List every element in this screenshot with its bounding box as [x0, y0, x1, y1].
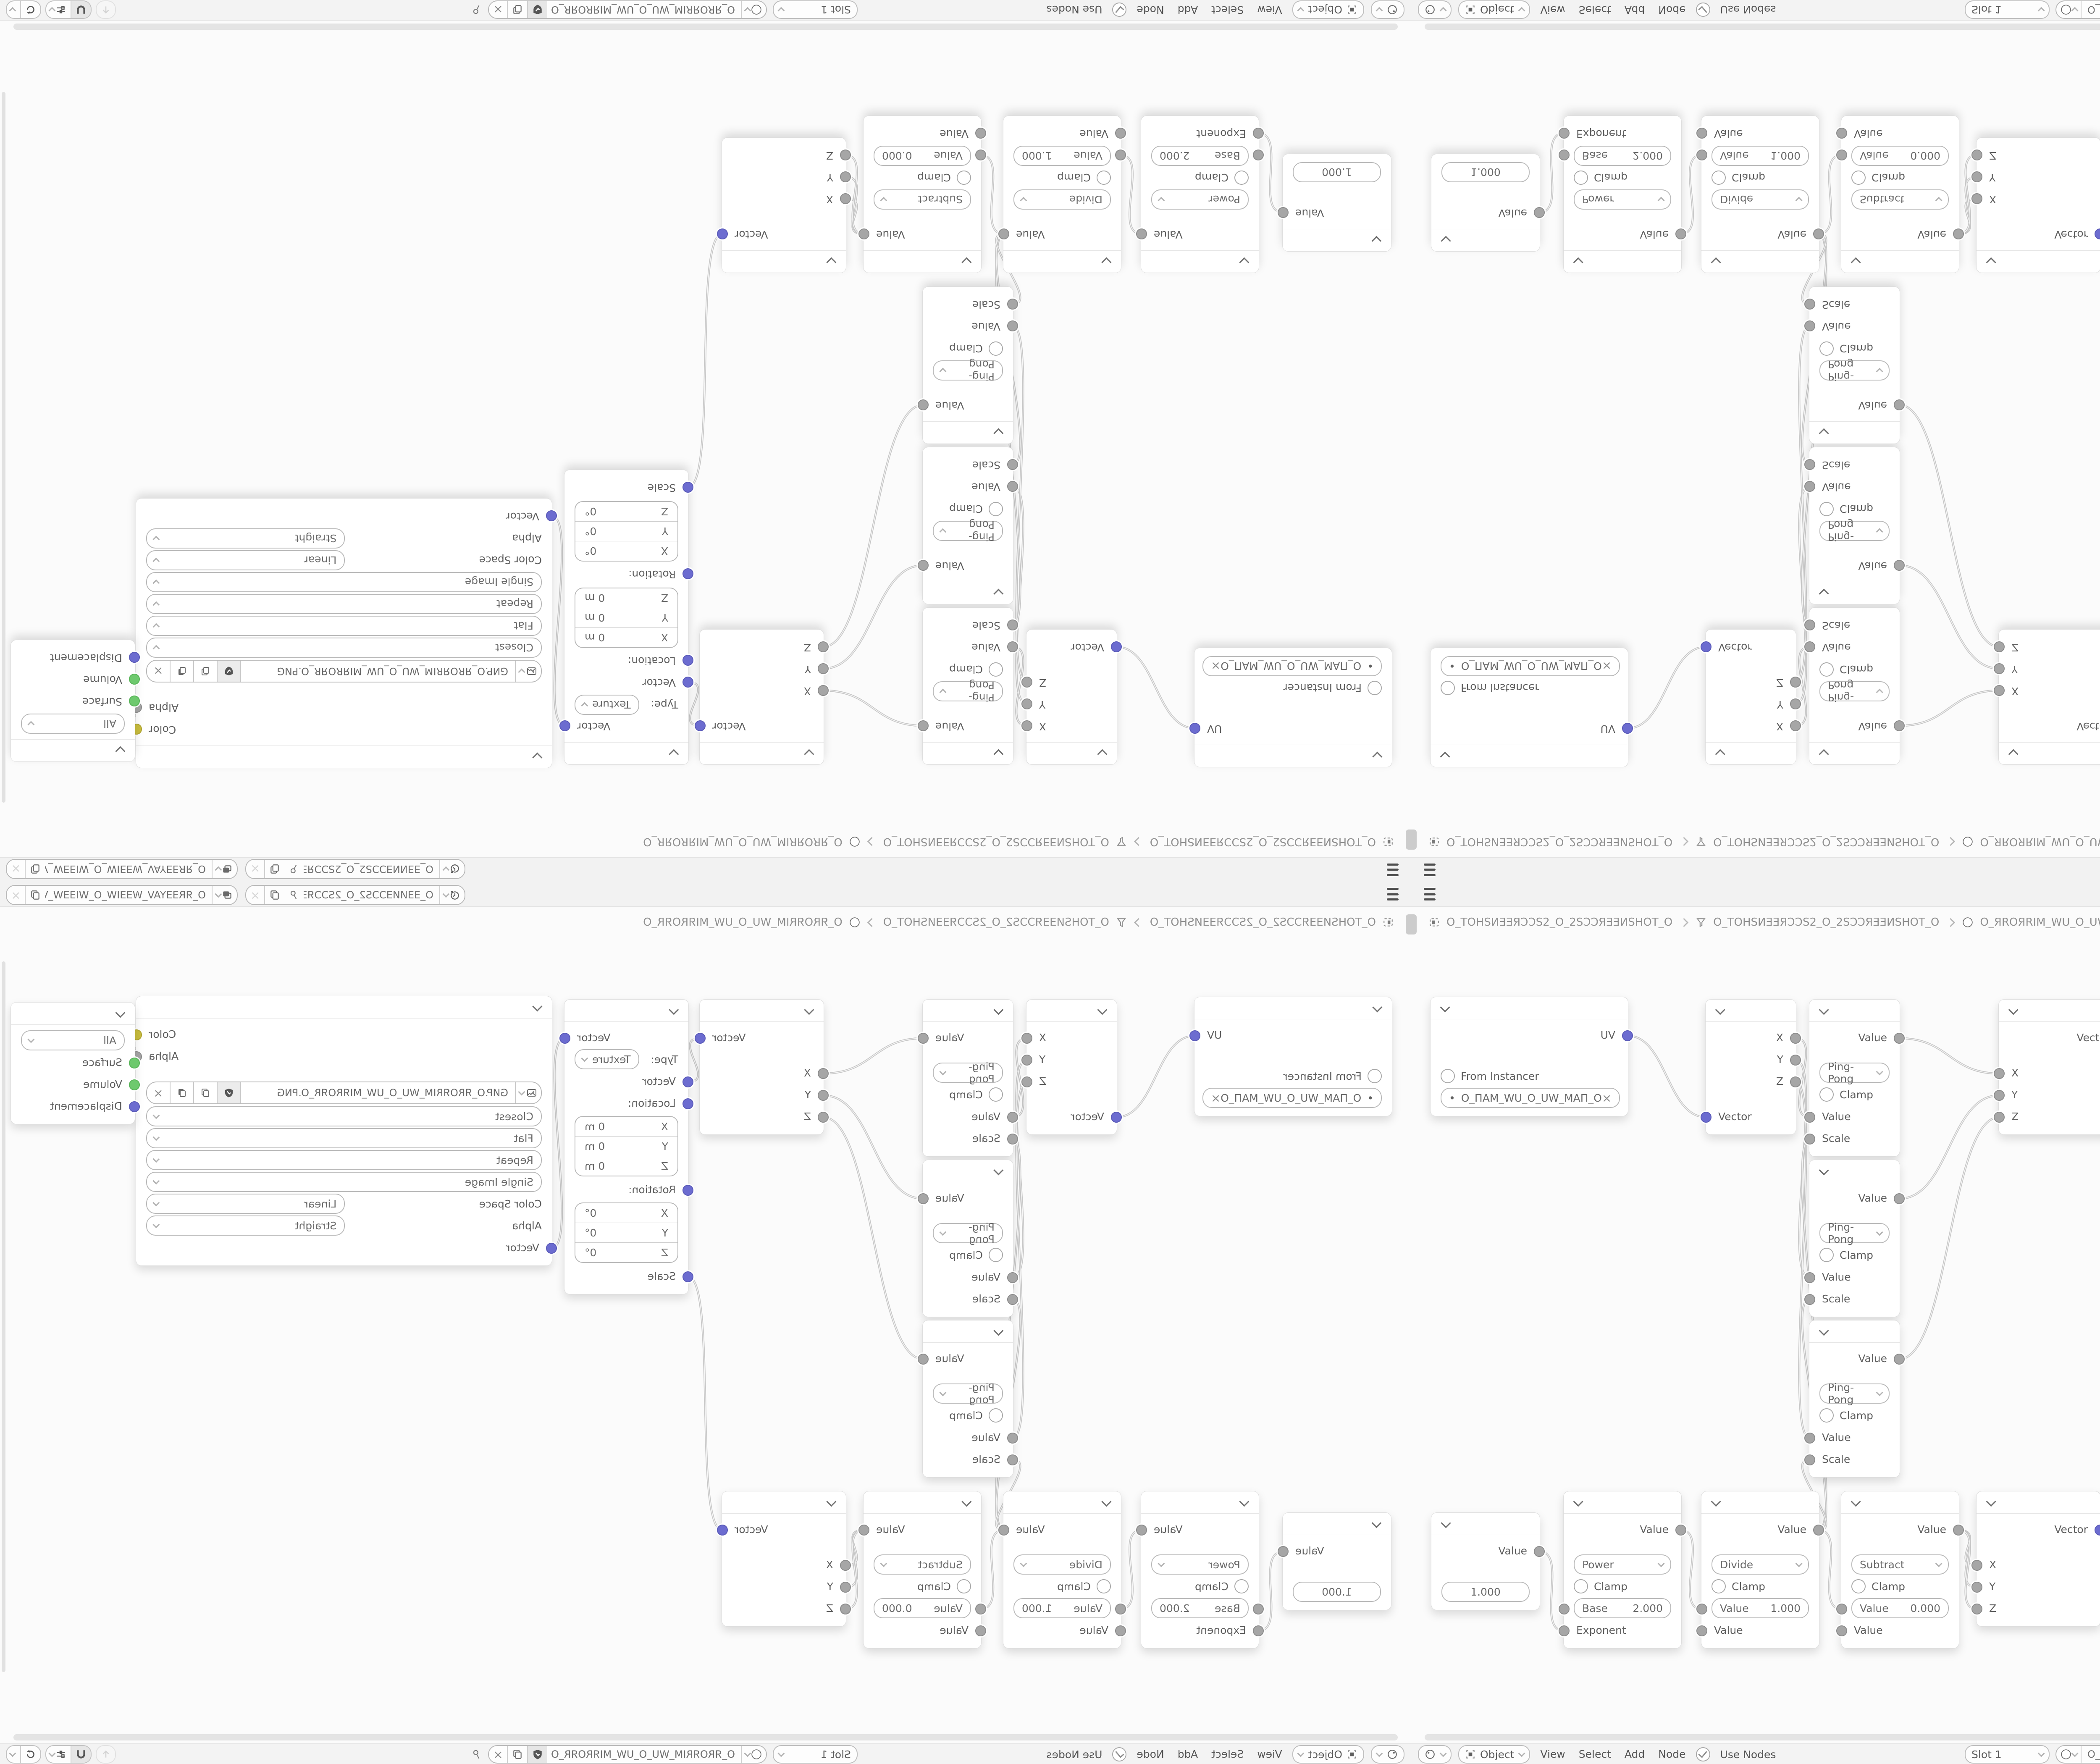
use-nodes-checkbox[interactable]: Use Nodes — [1047, 1747, 1127, 1761]
socket-sub.out[interactable] — [1953, 228, 1964, 239]
socket-pp2.out[interactable] — [1894, 560, 1905, 571]
pin-icon[interactable] — [471, 4, 482, 15]
node-pp1[interactable]: ValuePing-PongClampValueScale — [1809, 607, 1900, 765]
dropdown[interactable]: Divide — [1711, 189, 1809, 210]
node-pow[interactable]: ValuePowerClampBase2.000Exponent — [1563, 115, 1682, 273]
editor-type-button[interactable] — [1371, 1745, 1404, 1764]
node-c2[interactable]: VectorXYZ — [1976, 137, 2100, 273]
node-collapse-header[interactable] — [136, 745, 552, 768]
socket-c1.z[interactable] — [818, 641, 829, 652]
node-sub[interactable]: ValueSubtractClampValue0.000Value — [863, 1491, 982, 1648]
slot-select[interactable]: Slot 1 — [1965, 0, 2050, 19]
node-map[interactable]: VectorType:TextureVectorLocation:X0 mY0 … — [564, 999, 689, 1294]
number-field[interactable]: 1.000 — [1293, 162, 1381, 182]
socket-pp1.out[interactable] — [1894, 720, 1905, 731]
shader-mode-select[interactable]: Object — [1292, 1745, 1364, 1764]
material-name[interactable]: O_ЯROЯRIM_WU_O_UW_MIЯROЯR_O — [547, 1748, 741, 1760]
node-collapse-header[interactable] — [923, 421, 1013, 444]
menu-select[interactable]: Select — [1208, 1, 1247, 18]
node-collapse-header[interactable] — [1431, 745, 1628, 767]
socket-div.out[interactable] — [998, 1525, 1009, 1536]
socket-pp2.out[interactable] — [918, 1193, 929, 1204]
image-filename[interactable]: GИP.O_ЯROЯRIM_WU_O_UW_MIЯROЯR_O.PNG — [240, 1082, 515, 1103]
socket-uv.out[interactable] — [1622, 1030, 1633, 1041]
socket-pp1.scale[interactable] — [1007, 1134, 1018, 1144]
slot-select[interactable]: Slot 1 — [1965, 1745, 2050, 1764]
node-collapse-header[interactable] — [722, 250, 846, 273]
node-pow[interactable]: ValuePowerClampBase2.000Exponent — [1563, 1491, 1682, 1648]
dropdown[interactable]: Power — [1574, 189, 1671, 210]
node-collapse-header[interactable] — [923, 582, 1013, 604]
checkbox-icon[interactable] — [1368, 1069, 1382, 1083]
socket-c2.z[interactable] — [1971, 150, 1982, 160]
use-nodes-checkbox[interactable]: Use Nodes — [1696, 1747, 1776, 1761]
node-tex[interactable]: ColorAlphaGИP.O_ЯROЯRIM_WU_O_UW_MIЯROЯR_… — [136, 996, 552, 1266]
checkbox-icon[interactable] — [1441, 681, 1455, 695]
socket-uv.out[interactable] — [1189, 723, 1200, 734]
socket-div.vin[interactable] — [1696, 1604, 1707, 1614]
checkbox-icon[interactable] — [989, 1408, 1003, 1423]
stack-icon[interactable] — [170, 661, 193, 682]
checkbox-icon[interactable] — [1574, 1579, 1588, 1593]
node-collapse-header[interactable] — [1809, 1160, 1900, 1182]
socket-val.out[interactable] — [1534, 1546, 1545, 1557]
node-val[interactable]: Value1.000 — [1431, 154, 1540, 252]
socket-map.loc[interactable] — [682, 655, 693, 666]
checkbox-icon[interactable] — [1819, 1087, 1834, 1102]
checkbox-icon[interactable] — [1711, 171, 1726, 185]
socket-pp2.val[interactable] — [1804, 481, 1815, 492]
image-icon[interactable] — [515, 661, 541, 682]
socket-div.out[interactable] — [1813, 1525, 1824, 1536]
view-layer-name[interactable]: O_ЯRƎƎYAV_WƎƎIW_O_WIƎƎW_VAYƎƎRЯ_O — [45, 889, 212, 901]
view-layer-selector[interactable]: O_ЯRƎƎYAV_WƎƎIW_O_WIƎƎW_VAYƎƎRЯ_O × — [6, 859, 238, 879]
node-collapse-header[interactable] — [1809, 742, 1900, 764]
node-collapse-header[interactable] — [700, 742, 824, 764]
node-collapse-header[interactable] — [1431, 997, 1628, 1019]
scene-name[interactable]: O_ƎƎИИƎƆƆS2_O_2SƆƆЯƎƎИ... — [304, 889, 439, 901]
socket-div.v2[interactable] — [1696, 1625, 1707, 1636]
node-collapse-header[interactable] — [1706, 742, 1796, 764]
node-pp2[interactable]: ValuePing-PongClampValueScale — [1809, 1160, 1900, 1317]
dropdown[interactable]: Closest — [146, 1106, 542, 1126]
socket-pp3.scale[interactable] — [1007, 1454, 1018, 1465]
image-filename[interactable]: GИP.O_ЯROЯRIM_WU_O_UW_MIЯROЯR_O.PNG — [240, 661, 515, 682]
socket-div.vin[interactable] — [1115, 150, 1126, 160]
uv-map-field[interactable]: •O_ПAM_WU_O_UW_MAП_O× — [1202, 656, 1382, 676]
material-selector[interactable]: O_ЯROЯRIM_WU_O_UW_MIЯROЯR_O × — [2055, 0, 2100, 19]
checkbox-icon[interactable] — [989, 341, 1003, 356]
socket-sub.vin[interactable] — [975, 1604, 986, 1614]
socket-outp.disp[interactable] — [129, 652, 140, 663]
close-icon[interactable]: × — [1602, 659, 1612, 673]
checkbox-icon[interactable] — [989, 662, 1003, 677]
snapping-control[interactable] — [45, 0, 92, 19]
socket-pp2.scale[interactable] — [1007, 1294, 1018, 1305]
dropdown[interactable]: Single Image — [146, 572, 542, 592]
dropdown[interactable]: Ping-Pong — [1819, 1063, 1890, 1083]
socket-map.rot[interactable] — [682, 1185, 693, 1196]
socket-pp3.out[interactable] — [1894, 399, 1905, 410]
socket-pp3.out[interactable] — [918, 399, 929, 410]
socket-pow.out[interactable] — [1675, 1525, 1686, 1536]
node-uv[interactable]: UVFrom Instancer•O_ПAM_WU_O_UW_MAП_O× — [1194, 648, 1392, 767]
pin-icon[interactable] — [289, 864, 299, 874]
socket-sep.vec[interactable] — [1701, 1112, 1711, 1123]
node-collapse-header[interactable] — [11, 739, 135, 761]
menu-add[interactable]: Add — [1174, 1, 1201, 18]
node-sub[interactable]: ValueSubtractClampValue0.000Value — [1841, 1491, 1959, 1648]
region-handle[interactable] — [1411, 914, 1417, 934]
dropdown[interactable]: Divide — [1711, 1554, 1809, 1575]
node-div[interactable]: ValueDivideClampValue1.000Value — [1701, 1491, 1819, 1648]
socket-pp2.scale[interactable] — [1804, 1294, 1815, 1305]
node-collapse-header[interactable] — [1564, 1491, 1681, 1514]
socket-c2.out[interactable] — [2095, 228, 2100, 239]
node-pp3[interactable]: ValuePing-PongClampValueScale — [922, 1320, 1013, 1478]
pin-icon[interactable] — [471, 1749, 482, 1760]
vector-component-field[interactable]: Y0 m — [575, 1137, 677, 1156]
node-collapse-header[interactable] — [1999, 1000, 2100, 1022]
node-collapse-header[interactable] — [1977, 250, 2100, 273]
checkbox-icon[interactable] — [989, 1087, 1003, 1102]
checkbox-icon[interactable] — [1819, 662, 1834, 677]
dropdown[interactable]: Power — [1151, 1554, 1249, 1575]
node-pow[interactable]: ValuePowerClampBase2.000Exponent — [1141, 1491, 1259, 1648]
node-collapse-header[interactable] — [1809, 421, 1900, 444]
dropdown[interactable]: All — [21, 714, 125, 734]
horizontal-scrollbar[interactable] — [1425, 24, 2100, 30]
socket-pp2.out[interactable] — [918, 560, 929, 571]
vector-component-field[interactable]: Y0° — [575, 1223, 677, 1243]
node-c2[interactable]: VectorXYZ — [722, 1491, 846, 1627]
socket-c2.z[interactable] — [1971, 1604, 1982, 1614]
socket-pp1.out[interactable] — [918, 1033, 929, 1044]
node-c1[interactable]: VectorXYZ — [699, 629, 824, 765]
checkbox-icon[interactable] — [1819, 341, 1834, 356]
copy-icon[interactable] — [269, 890, 280, 900]
socket-pow.base[interactable] — [1253, 1604, 1264, 1614]
socket-val.out[interactable] — [1278, 1546, 1289, 1557]
socket-pp1.out[interactable] — [918, 720, 929, 731]
node-outp[interactable]: AllSurfaceVolumeDisplacement — [10, 1002, 135, 1124]
socket-c2.x[interactable] — [1971, 193, 1982, 204]
socket-val.out[interactable] — [1534, 207, 1545, 218]
material-name[interactable]: O_ЯROЯRIM_WU_O_UW_MIЯROЯR_O — [547, 4, 741, 16]
vector-component-field[interactable]: Z0 m — [575, 1156, 677, 1176]
node-collapse-header[interactable] — [1809, 1320, 1900, 1343]
material-name[interactable]: O_ЯROЯRIM_WU_O_UW_MIЯROЯR_O — [2082, 1748, 2100, 1760]
socket-sub.vin[interactable] — [1836, 1604, 1847, 1614]
shader-mode-select[interactable]: Object — [1292, 0, 1364, 19]
vector-component-field[interactable]: Z0° — [575, 502, 677, 521]
number-field[interactable]: 1.000 — [1293, 1582, 1381, 1602]
checkbox-icon[interactable] — [1851, 1579, 1866, 1593]
shield-icon[interactable] — [217, 661, 240, 682]
socket-c2.z[interactable] — [840, 1604, 851, 1614]
socket-outp.volume[interactable] — [129, 674, 140, 685]
socket-sub.v2[interactable] — [975, 1625, 986, 1636]
node-collapse-header[interactable] — [700, 1000, 824, 1022]
socket-outp.disp[interactable] — [129, 1101, 140, 1112]
menu-view[interactable]: View — [1254, 1746, 1285, 1763]
socket-c1.x[interactable] — [1994, 1068, 2005, 1079]
shader-mode-select[interactable]: Object — [1458, 0, 1530, 19]
node-sep[interactable]: XYZVector — [1705, 629, 1796, 765]
dropdown[interactable]: Power — [1574, 1554, 1671, 1575]
socket-sep.z[interactable] — [1021, 677, 1032, 688]
socket-c2.out[interactable] — [717, 228, 728, 239]
node-collapse-header[interactable] — [1701, 1491, 1819, 1514]
node-collapse-header[interactable] — [1141, 1491, 1259, 1514]
socket-c1.x[interactable] — [818, 685, 829, 696]
node-pp1[interactable]: ValuePing-PongClampValueScale — [1809, 999, 1900, 1157]
number-field[interactable]: Value0.000 — [1851, 146, 1949, 166]
checkbox-icon[interactable] — [1441, 1069, 1455, 1083]
dropdown[interactable]: Flat — [146, 1128, 542, 1148]
copy-icon[interactable] — [193, 661, 217, 682]
socket-c1.z[interactable] — [1994, 641, 2005, 652]
dropdown[interactable]: Texture — [575, 695, 639, 715]
vector-component-field[interactable]: X0 m — [575, 627, 677, 647]
socket-sep.vec[interactable] — [1701, 641, 1711, 652]
socket-map.vec[interactable] — [682, 1076, 693, 1087]
socket-pp3.out[interactable] — [1894, 1354, 1905, 1365]
dropdown[interactable]: Repeat — [146, 594, 542, 614]
checkbox-icon[interactable] — [1819, 502, 1834, 516]
dropdown[interactable]: Ping-Pong — [1819, 681, 1890, 701]
socket-pow.out[interactable] — [1675, 228, 1686, 239]
menu-node[interactable]: Node — [1133, 1, 1167, 18]
dropdown[interactable]: Ping-Pong — [933, 360, 1003, 381]
close-icon[interactable]: × — [11, 888, 21, 902]
socket-pp2.out[interactable] — [1894, 1193, 1905, 1204]
menu-node[interactable]: Node — [1133, 1746, 1167, 1763]
vector-component-field[interactable]: Z0° — [575, 1243, 677, 1262]
checkbox-icon[interactable] — [1234, 171, 1249, 185]
socket-sep.y[interactable] — [1790, 1055, 1801, 1066]
copy-icon[interactable] — [512, 1749, 523, 1760]
socket-outp.volume[interactable] — [129, 1079, 140, 1090]
menu-icon[interactable] — [1387, 888, 1399, 900]
vector-component-field[interactable]: X0° — [575, 541, 677, 561]
uv-map-field[interactable]: •O_ПAM_WU_O_UW_MAП_O× — [1441, 1088, 1620, 1108]
editor-type-button[interactable] — [1371, 0, 1404, 19]
node-div[interactable]: ValueDivideClampValue1.000Value — [1003, 1491, 1121, 1648]
number-field[interactable]: Value0.000 — [874, 146, 971, 166]
region-handle[interactable] — [1411, 829, 1417, 850]
menu-icon[interactable] — [1424, 888, 1436, 900]
copy-icon[interactable] — [269, 864, 280, 874]
socket-sep.x[interactable] — [1790, 1033, 1801, 1044]
overlay-control[interactable] — [6, 0, 41, 19]
checkbox-icon[interactable] — [1234, 1579, 1249, 1593]
view-layer-selector[interactable]: O_ЯRƎƎYAV_WƎƎIW_O_WIƎƎW_VAYƎƎRЯ_O × — [6, 885, 238, 905]
checkbox-icon[interactable] — [1819, 1248, 1834, 1262]
socket-sep.vec[interactable] — [1111, 1112, 1122, 1123]
slot-select[interactable]: Slot 1 — [773, 1745, 858, 1764]
dropdown[interactable]: Single Image — [146, 1172, 542, 1192]
node-collapse-header[interactable] — [923, 1320, 1013, 1343]
use-nodes-checkbox[interactable]: Use Nodes — [1047, 3, 1127, 17]
material-selector[interactable]: O_ЯROЯRIM_WU_O_UW_MIЯROЯR_O × — [488, 0, 767, 19]
slot-select[interactable]: Slot 1 — [773, 0, 858, 19]
node-canvas[interactable]: O_TOHSИƎƎЯƆƆS2_O_2SƆƆЯƎƎИSHOT_O O_TOHSИƎ… — [0, 21, 1411, 857]
vector-component-field[interactable]: Y0 m — [575, 608, 677, 627]
dropdown[interactable]: Linear — [146, 550, 345, 570]
node-collapse-header[interactable] — [1431, 229, 1540, 251]
region-handle[interactable] — [1406, 914, 1411, 934]
node-pp3[interactable]: ValuePing-PongClampValueScale — [1809, 286, 1900, 444]
socket-pp3.val[interactable] — [1804, 1433, 1815, 1444]
vertical-scrollbar[interactable] — [2, 92, 5, 803]
node-sub[interactable]: ValueSubtractClampValue0.000Value — [863, 115, 982, 273]
socket-pp3.val[interactable] — [1804, 320, 1815, 331]
socket-c1.z[interactable] — [818, 1112, 829, 1123]
socket-pp1.val[interactable] — [1007, 641, 1018, 652]
socket-pp3.scale[interactable] — [1804, 1454, 1815, 1465]
node-div[interactable]: ValueDivideClampValue1.000Value — [1701, 115, 1819, 273]
node-uv[interactable]: UVFrom Instancer•O_ПAM_WU_O_UW_MAП_O× — [1430, 648, 1628, 767]
shield-icon[interactable] — [532, 1749, 543, 1760]
material-selector[interactable]: O_ЯROЯRIM_WU_O_UW_MIЯROЯR_O × — [488, 1745, 767, 1764]
socket-pp2.val[interactable] — [1007, 1272, 1018, 1283]
menu-node[interactable]: Node — [1655, 1746, 1689, 1763]
node-div[interactable]: ValueDivideClampValue1.000Value — [1003, 115, 1121, 273]
close-icon[interactable]: × — [250, 888, 260, 902]
socket-div.out[interactable] — [1813, 228, 1824, 239]
node-sub[interactable]: ValueSubtractClampValue0.000Value — [1841, 115, 1959, 273]
number-field[interactable]: Value0.000 — [1851, 1598, 1949, 1618]
socket-pow.out[interactable] — [1136, 228, 1147, 239]
node-collapse-header[interactable] — [864, 1491, 981, 1514]
socket-pp2.scale[interactable] — [1804, 459, 1815, 470]
vertical-scrollbar[interactable] — [2, 961, 5, 1672]
socket-sub.v2[interactable] — [975, 128, 986, 139]
menu-icon[interactable] — [1387, 864, 1399, 876]
socket-sep.y[interactable] — [1790, 698, 1801, 709]
uv-map-field[interactable]: •O_ПAM_WU_O_UW_MAП_O× — [1202, 1088, 1382, 1108]
overlay-control[interactable] — [6, 1745, 41, 1764]
horizontal-scrollbar[interactable] — [13, 1734, 1398, 1740]
socket-sub.vin[interactable] — [1836, 150, 1847, 160]
socket-c1.z[interactable] — [1994, 1112, 2005, 1123]
node-collapse-header[interactable] — [923, 1000, 1013, 1022]
number-field[interactable]: Base2.000 — [1574, 1598, 1671, 1618]
socket-pow.base[interactable] — [1559, 1604, 1570, 1614]
socket-pp3.scale[interactable] — [1804, 299, 1815, 310]
shield-icon[interactable] — [532, 4, 543, 15]
node-pow[interactable]: ValuePowerClampBase2.000Exponent — [1141, 115, 1259, 273]
socket-sep.x[interactable] — [1021, 1033, 1032, 1044]
number-field[interactable]: Value1.000 — [1013, 1598, 1111, 1618]
checkbox-icon[interactable] — [1819, 1408, 1834, 1423]
dropdown[interactable]: Power — [1151, 189, 1249, 210]
menu-add[interactable]: Add — [1174, 1746, 1201, 1763]
socket-sub.out[interactable] — [858, 228, 869, 239]
socket-outp.surface[interactable] — [129, 696, 140, 706]
vector-value-group[interactable]: X0 mY0 mZ0 m — [575, 588, 678, 648]
socket-c1.out[interactable] — [695, 1033, 706, 1044]
material-name[interactable]: O_ЯROЯRIM_WU_O_UW_MIЯROЯR_O — [2082, 4, 2100, 16]
number-field[interactable]: Value0.000 — [874, 1598, 971, 1618]
socket-sub.v2[interactable] — [1836, 1625, 1847, 1636]
node-c1[interactable]: VectorXYZ — [699, 999, 824, 1135]
stack-icon[interactable] — [170, 1082, 193, 1103]
up-arrow-button[interactable] — [96, 1745, 116, 1764]
socket-sep.y[interactable] — [1021, 698, 1032, 709]
node-collapse-header[interactable] — [1809, 582, 1900, 604]
socket-c1.out[interactable] — [695, 720, 706, 731]
menu-view[interactable]: View — [1254, 1, 1285, 18]
dropdown[interactable]: Subtract — [1851, 189, 1949, 210]
socket-div.v2[interactable] — [1696, 128, 1707, 139]
image-datablock[interactable]: GИP.O_ЯROЯRIM_WU_O_UW_MIЯROЯR_O.PNG× — [146, 1081, 542, 1104]
menu-select[interactable]: Select — [1575, 1746, 1614, 1763]
checkbox-icon[interactable] — [1368, 681, 1382, 695]
number-field[interactable]: Base2.000 — [1151, 146, 1249, 166]
node-collapse-header[interactable] — [1026, 742, 1117, 764]
close-icon[interactable]: × — [1602, 1091, 1612, 1105]
node-canvas[interactable]: O_TOHSИƎƎЯƆƆS2_O_2SƆƆЯƎƎИSHOT_O O_TOHSИƎ… — [1411, 907, 2100, 1743]
number-field[interactable]: 1.000 — [1441, 162, 1530, 182]
socket-uv.out[interactable] — [1189, 1030, 1200, 1041]
socket-sep.x[interactable] — [1021, 720, 1032, 731]
dropdown[interactable]: Subtract — [874, 189, 971, 210]
socket-pp1.val[interactable] — [1007, 1112, 1018, 1123]
menu-view[interactable]: View — [1537, 1746, 1568, 1763]
number-field[interactable]: Value1.000 — [1711, 1598, 1809, 1618]
socket-div.out[interactable] — [998, 228, 1009, 239]
node-collapse-header[interactable] — [1194, 997, 1392, 1019]
socket-sep.y[interactable] — [1021, 1055, 1032, 1066]
close-icon[interactable]: × — [493, 1748, 503, 1761]
socket-c1.y[interactable] — [818, 1090, 829, 1101]
node-collapse-header[interactable] — [923, 742, 1013, 764]
dropdown[interactable]: Ping-Pong — [1819, 1383, 1890, 1404]
vector-value-group[interactable]: X0°Y0°Z0° — [575, 1202, 678, 1263]
socket-c2.x[interactable] — [840, 1560, 851, 1571]
dropdown[interactable]: Linear — [146, 1194, 345, 1214]
socket-pp3.out[interactable] — [918, 1354, 929, 1365]
dropdown[interactable]: Straight — [146, 1215, 345, 1236]
node-collapse-header[interactable] — [1977, 1491, 2100, 1514]
socket-map.vec[interactable] — [682, 677, 693, 688]
scene-selector[interactable]: O_ƎƎИИƎƆƆS2_O_2SƆƆЯƎƎИ... × — [245, 885, 465, 905]
node-pp2[interactable]: ValuePing-PongClampValueScale — [1809, 447, 1900, 604]
node-collapse-header[interactable] — [1999, 742, 2100, 764]
node-uv[interactable]: UVFrom Instancer•O_ПAM_WU_O_UW_MAП_O× — [1430, 997, 1628, 1116]
socket-c2.x[interactable] — [1971, 1560, 1982, 1571]
dropdown[interactable]: Ping-Pong — [1819, 521, 1890, 541]
socket-pp1.scale[interactable] — [1804, 619, 1815, 630]
node-collapse-header[interactable] — [1283, 229, 1391, 251]
checkbox-icon[interactable] — [957, 1579, 971, 1593]
node-pp2[interactable]: ValuePing-PongClampValueScale — [922, 1160, 1013, 1317]
copy-icon[interactable] — [30, 864, 41, 874]
image-datablock[interactable]: GИP.O_ЯROЯRIM_WU_O_UW_MIЯROЯR_O.PNG× — [146, 660, 542, 682]
vector-component-field[interactable]: Z0 m — [575, 588, 677, 608]
node-pp3[interactable]: ValuePing-PongClampValueScale — [1809, 1320, 1900, 1478]
socket-pow.exp[interactable] — [1559, 1625, 1570, 1636]
socket-map.scale[interactable] — [682, 482, 693, 493]
node-sep[interactable]: XYZVector — [1026, 629, 1117, 765]
editor-type-button[interactable] — [1418, 1745, 1452, 1764]
dropdown[interactable]: Texture — [575, 1049, 639, 1069]
close-icon[interactable]: × — [11, 862, 21, 876]
socket-map.rot[interactable] — [682, 568, 693, 579]
socket-outp.surface[interactable] — [129, 1058, 140, 1068]
